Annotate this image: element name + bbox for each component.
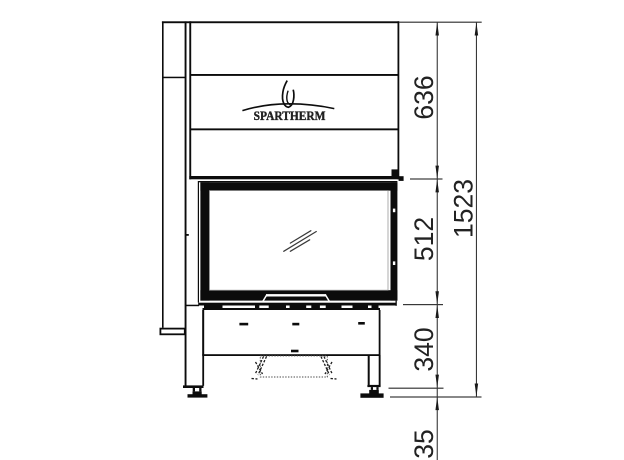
- svg-text:636: 636: [409, 75, 439, 119]
- svg-text:35: 35: [409, 429, 439, 458]
- svg-text:340: 340: [409, 327, 439, 371]
- svg-text:512: 512: [409, 217, 439, 261]
- svg-text:1523: 1523: [449, 179, 479, 238]
- svg-text:SPARTHERM: SPARTHERM: [254, 108, 326, 123]
